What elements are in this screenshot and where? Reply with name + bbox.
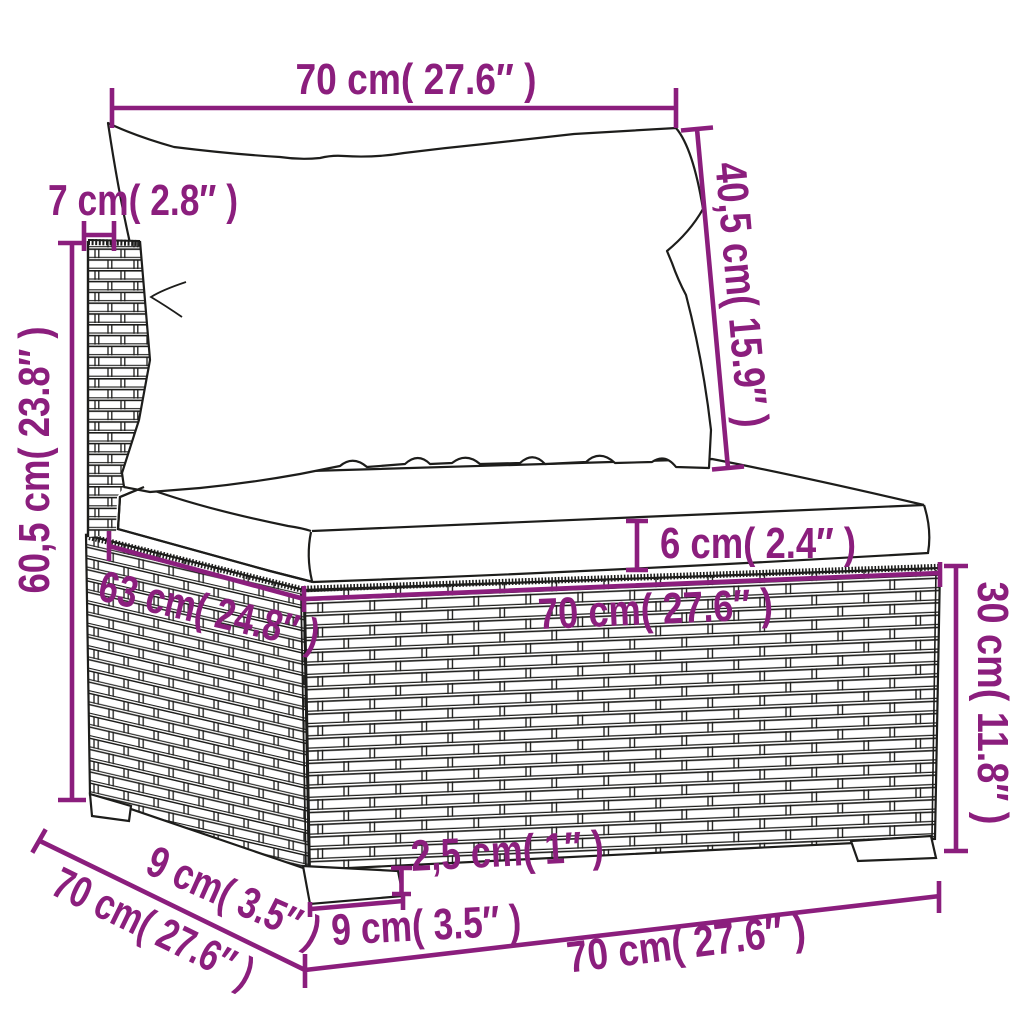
svg-text:7 cm( 2.8″ ): 7 cm( 2.8″ ) <box>48 176 238 225</box>
svg-text:9 cm( 3.5″ ): 9 cm( 3.5″ ) <box>330 896 522 955</box>
svg-text:30 cm( 11.8″ ): 30 cm( 11.8″ ) <box>968 582 1017 825</box>
svg-text:60,5 cm( 23.8″ ): 60,5 cm( 23.8″ ) <box>10 327 59 594</box>
svg-text:70 cm( 27.6″ ): 70 cm( 27.6″ ) <box>296 55 537 104</box>
svg-text:2,5 cm( 1″ ): 2,5 cm( 1″ ) <box>410 822 605 881</box>
svg-text:6 cm( 2.4″ ): 6 cm( 2.4″ ) <box>660 519 856 568</box>
svg-text:70 cm( 27.6″ ): 70 cm( 27.6″ ) <box>537 580 774 639</box>
